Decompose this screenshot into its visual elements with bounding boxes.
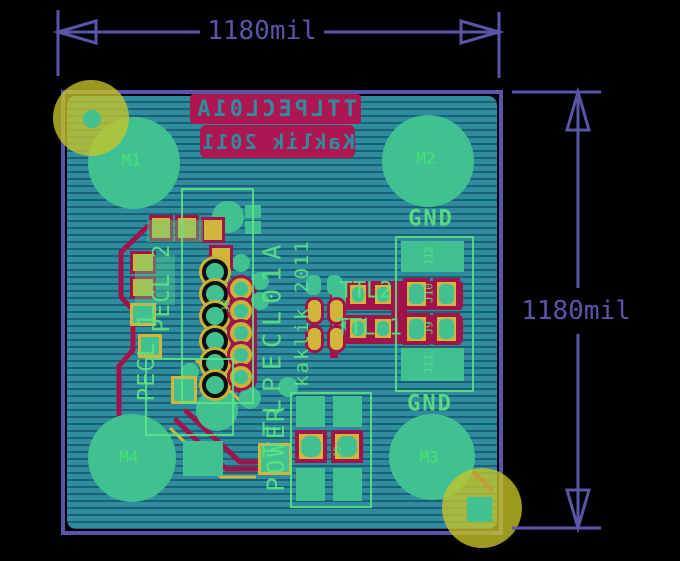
pcb-render-canvas: TTLPECL01A Kaklik 2011 M1 M2 M3 M4 GND G… <box>0 0 680 561</box>
pcb-board <box>61 90 503 535</box>
dimension-right-label: 1180mil <box>521 296 631 326</box>
dimension-top-label: 1180mil <box>207 16 317 46</box>
copper-pour <box>67 96 497 529</box>
